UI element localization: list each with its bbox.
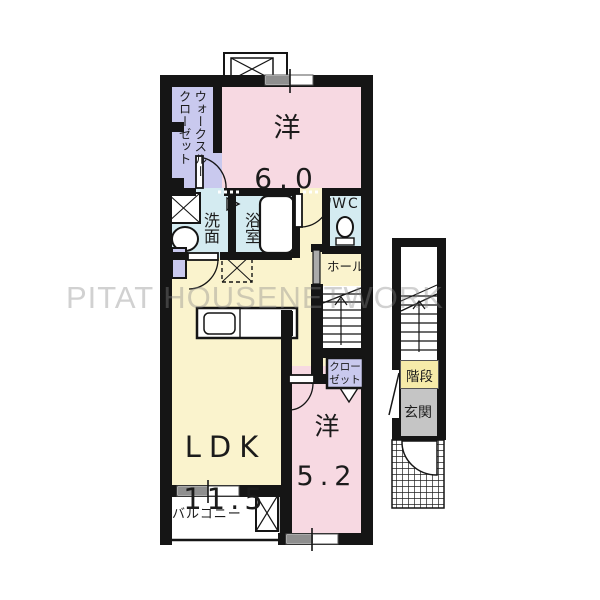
western6-label: 洋 6.0	[232, 96, 342, 212]
balcony-label: バルコニー	[172, 503, 242, 522]
door-leaf	[289, 375, 314, 383]
washroom-label: 洗面	[200, 212, 220, 260]
hall-label: ホール	[327, 256, 365, 275]
toilet-icon	[337, 217, 353, 237]
watermark-text: PITAT HOUSENETWORK	[66, 280, 586, 316]
walkthrough-closet-label: ウォークスルー クローゼット	[176, 90, 207, 192]
wc-label: WC	[328, 196, 364, 212]
stairs-label-text: 階段	[406, 365, 433, 385]
entrance-label: 玄関	[404, 402, 432, 422]
sliding-door	[313, 250, 320, 284]
western52-size: 5.2	[285, 462, 369, 492]
western6-name: 洋	[232, 114, 342, 144]
bathroom-label: 浴室	[241, 212, 261, 260]
stairs-label: 階段	[400, 360, 439, 389]
ldk-name: LDK	[163, 432, 288, 464]
western6-size: 6.0	[232, 164, 342, 195]
western52-name: 洋	[285, 413, 369, 441]
floorplan-image: ウォークスルー クローゼット 洋 6.0 洗面 浴室 WC ホール LDK 11…	[0, 0, 600, 600]
closet-label: クロー ゼット	[326, 361, 364, 387]
western52-label: 洋 5.2	[285, 395, 369, 509]
